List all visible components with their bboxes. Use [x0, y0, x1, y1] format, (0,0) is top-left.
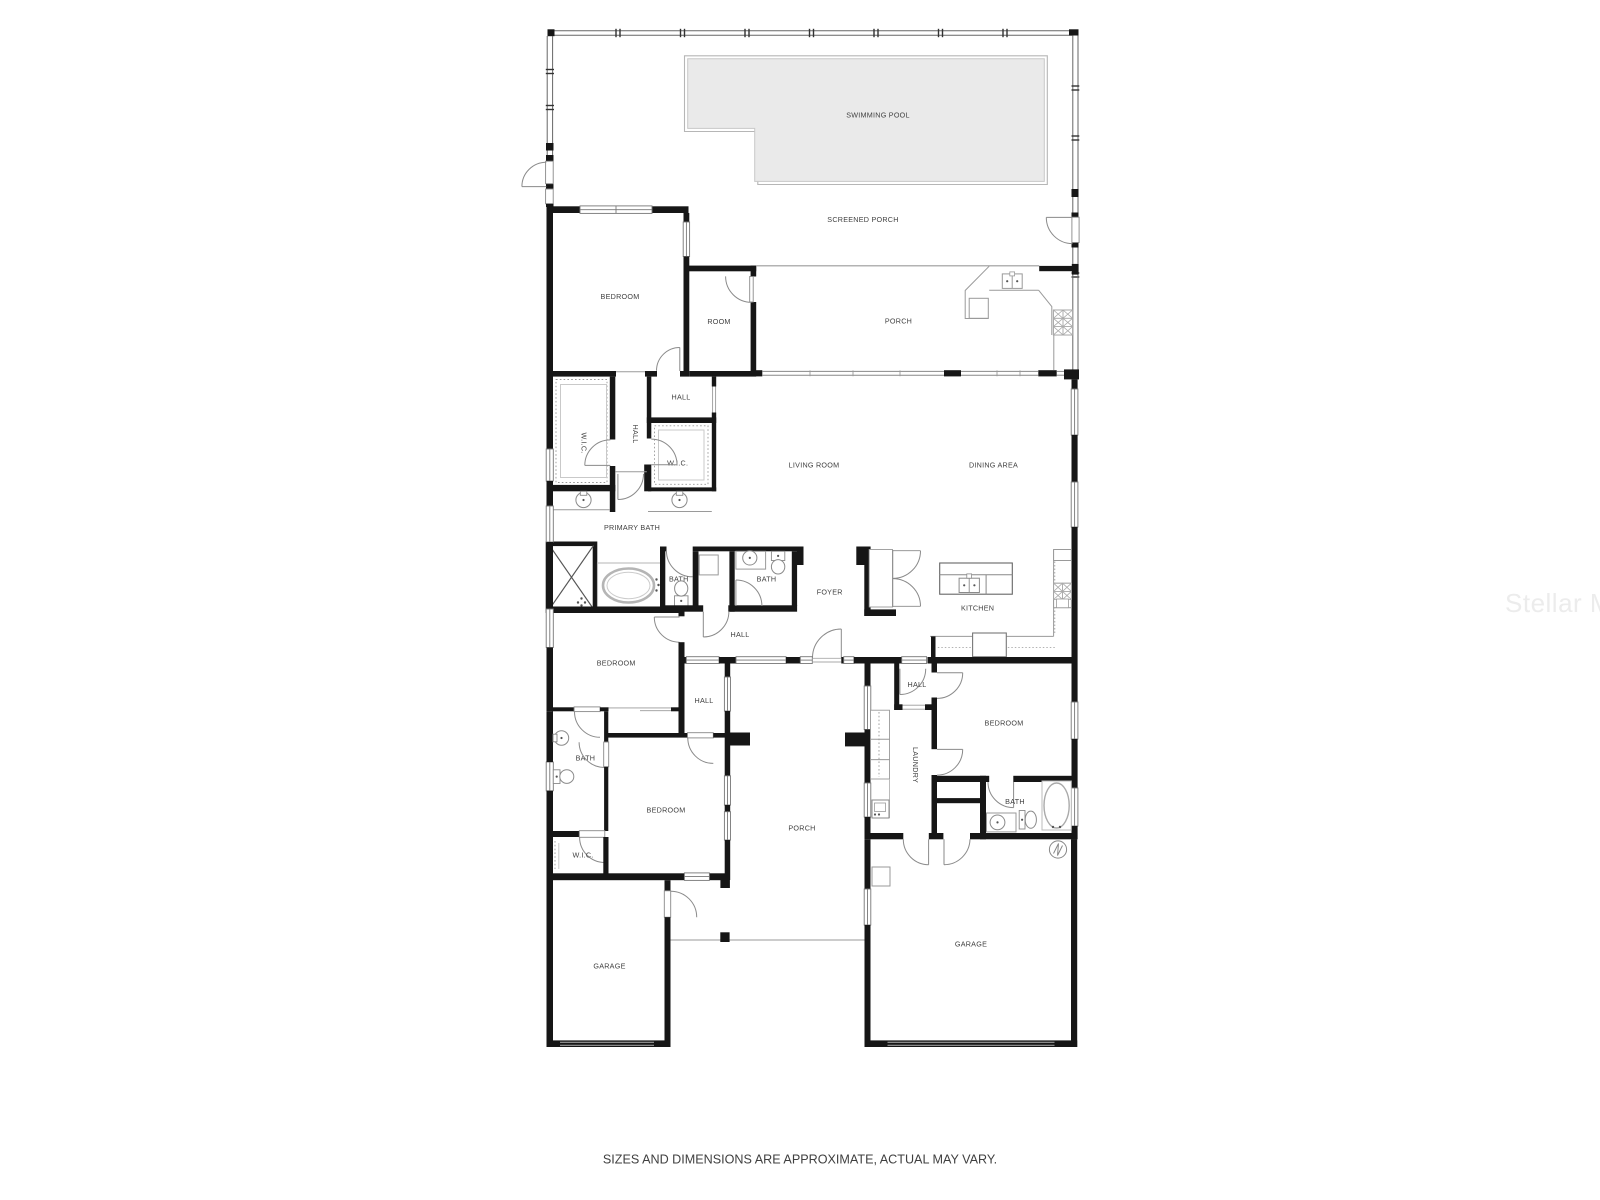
svg-text:GARAGE: GARAGE [593, 962, 625, 971]
svg-text:BATH: BATH [576, 754, 596, 763]
svg-text:Stellar MLS: Stellar MLS [1505, 588, 1600, 618]
svg-text:SCREENED PORCH: SCREENED PORCH [827, 215, 898, 224]
svg-text:PRIMARY BATH: PRIMARY BATH [604, 523, 660, 532]
svg-text:KITCHEN: KITCHEN [961, 604, 994, 613]
svg-text:PORCH: PORCH [788, 824, 815, 833]
svg-text:SIZES AND DIMENSIONS ARE APPRO: SIZES AND DIMENSIONS ARE APPROXIMATE, AC… [603, 1153, 997, 1167]
svg-text:PORCH: PORCH [885, 317, 912, 326]
svg-text:BEDROOM: BEDROOM [601, 292, 640, 301]
svg-text:ROOM: ROOM [707, 317, 730, 326]
svg-text:W.I.C.: W.I.C. [580, 432, 589, 453]
svg-text:DINING AREA: DINING AREA [969, 461, 1018, 470]
svg-text:BEDROOM: BEDROOM [985, 719, 1024, 728]
svg-text:HALL: HALL [631, 425, 640, 444]
svg-text:W.I.C.: W.I.C. [667, 459, 688, 468]
svg-text:GARAGE: GARAGE [955, 940, 987, 949]
svg-text:HALL: HALL [731, 630, 750, 639]
svg-text:HALL: HALL [695, 696, 714, 705]
svg-text:W.I.C.: W.I.C. [572, 850, 593, 859]
svg-text:LAUNDRY: LAUNDRY [911, 747, 920, 783]
svg-text:HALL: HALL [672, 393, 691, 402]
svg-text:LIVING ROOM: LIVING ROOM [789, 461, 840, 470]
svg-text:BEDROOM: BEDROOM [597, 659, 636, 668]
svg-text:BEDROOM: BEDROOM [647, 806, 686, 815]
svg-text:HALL: HALL [908, 680, 927, 689]
svg-text:BATH: BATH [1005, 797, 1025, 806]
svg-text:SWIMMING POOL: SWIMMING POOL [846, 111, 910, 120]
svg-text:FOYER: FOYER [817, 588, 843, 597]
svg-text:BATH: BATH [757, 574, 777, 583]
